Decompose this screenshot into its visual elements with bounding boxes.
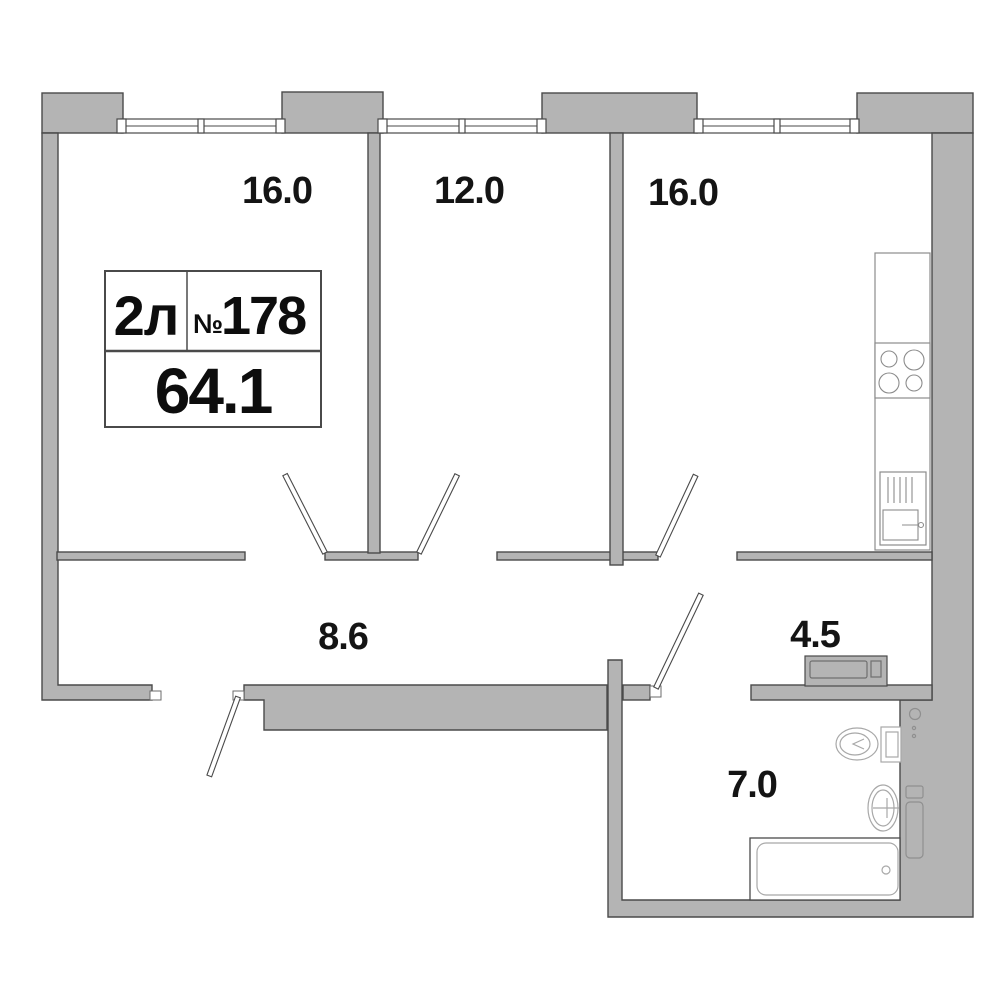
window <box>117 119 285 133</box>
door-leaf-bathroom <box>654 593 703 689</box>
unit-number-sign: № <box>193 309 223 339</box>
wall-segment <box>751 685 932 700</box>
door-frame <box>150 691 161 700</box>
floor-plan-canvas: 16.0 12.0 16.0 8.6 4.5 7.0 2л № 178 64.1 <box>0 0 1000 1000</box>
cooktop-icon <box>875 343 930 398</box>
door-leaf-living-room <box>283 473 327 554</box>
bathtub-icon <box>750 838 900 900</box>
unit-info-box: 2л № 178 64.1 <box>105 271 321 427</box>
room-area-kitchen: 16.0 <box>648 172 718 214</box>
wardrobe-icon <box>805 656 887 686</box>
washbasin-icon <box>868 785 899 831</box>
partition-wall-vertical <box>610 133 623 565</box>
windows <box>117 119 859 133</box>
window <box>694 119 859 133</box>
partition-wall <box>57 552 245 560</box>
room-area-entry-niche: 4.5 <box>790 614 841 656</box>
toilet-icon <box>836 727 901 762</box>
room-area-bedroom: 12.0 <box>434 170 504 212</box>
facade-pier <box>282 92 383 133</box>
room-area-living-room: 16.0 <box>242 170 312 212</box>
unit-total-area: 64.1 <box>155 355 272 427</box>
partition-wall <box>737 552 932 560</box>
room-area-hallway: 8.6 <box>318 616 368 658</box>
door-leaf-kitchen <box>656 474 698 557</box>
partition-wall <box>497 552 658 560</box>
kitchen-fixtures <box>875 253 930 550</box>
unit-type-label: 2л <box>114 284 179 347</box>
partition-wall-vertical <box>368 133 380 553</box>
room-area-bathroom: 7.0 <box>727 764 777 806</box>
floor-plan: 16.0 12.0 16.0 8.6 4.5 7.0 2л № 178 64.1 <box>0 0 1000 1000</box>
walls <box>42 92 973 917</box>
door-leaf-bedroom <box>417 474 460 554</box>
facade-pier <box>542 93 697 133</box>
window <box>378 119 546 133</box>
corridor-bottom-wall <box>244 685 607 730</box>
facade-pier <box>42 93 123 133</box>
facade-pier <box>857 93 973 133</box>
kitchen-sink-icon <box>880 472 926 545</box>
door-leaf-entrance <box>207 696 240 777</box>
wall-segment <box>623 685 650 700</box>
unit-number: 178 <box>221 286 306 346</box>
